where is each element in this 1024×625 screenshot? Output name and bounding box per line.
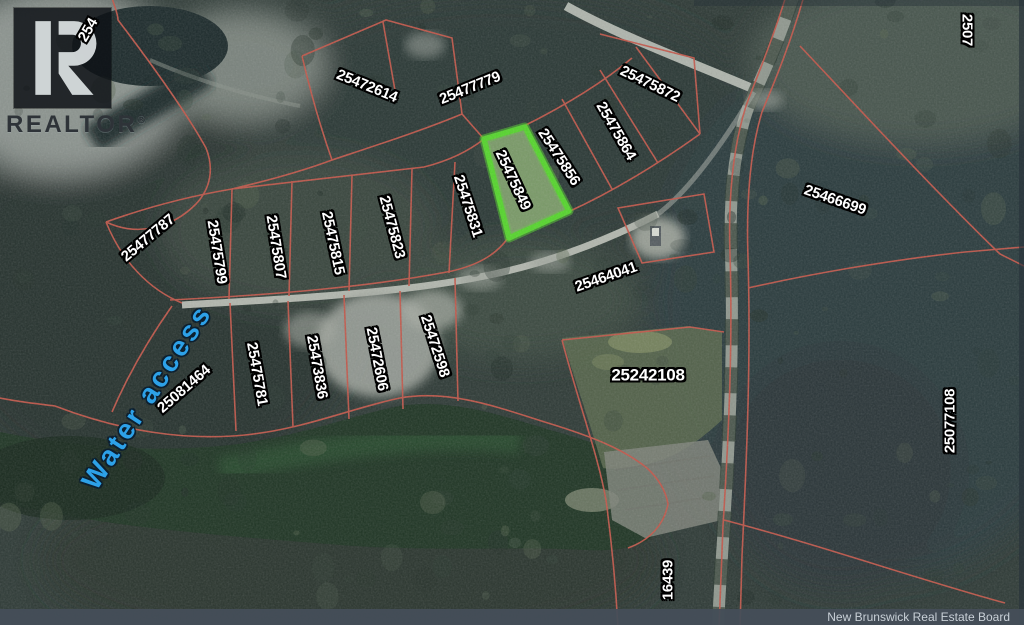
attribution-band: New Brunswick Real Estate Board bbox=[0, 609, 1024, 625]
parcel-label: 16439 bbox=[661, 560, 676, 600]
parcel-label: 25077108 bbox=[943, 389, 958, 453]
registered-mark-icon: ® bbox=[137, 114, 145, 126]
parcel-label: 25242108 bbox=[611, 367, 684, 384]
realtor-logo-text: REALTOR® bbox=[6, 111, 144, 139]
attribution-text: New Brunswick Real Estate Board bbox=[827, 610, 1010, 624]
map-edge-top bbox=[694, 0, 1024, 6]
aerial-basemap bbox=[0, 0, 1024, 625]
parcel-label: 2507 bbox=[960, 14, 975, 46]
map-edge-right bbox=[1019, 0, 1024, 625]
map-viewport[interactable]: REALTOR® 2542547261425477779254758722547… bbox=[0, 0, 1024, 625]
